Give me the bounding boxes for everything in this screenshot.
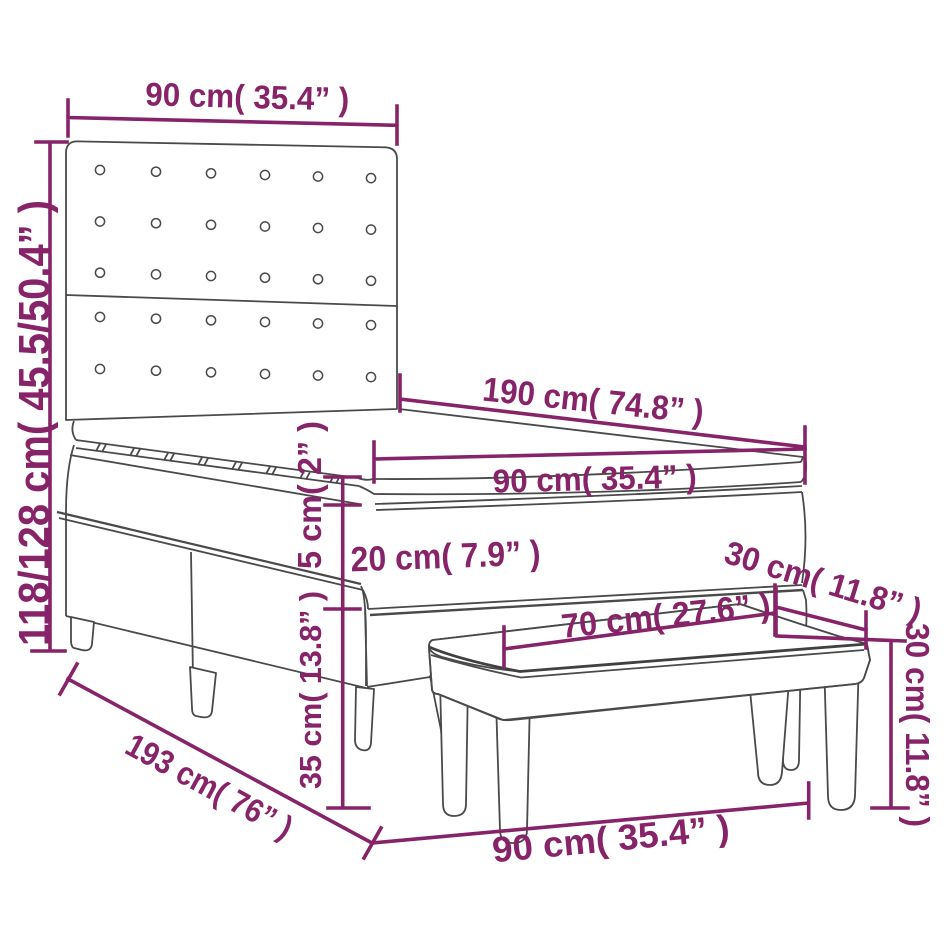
svg-text:90 cm( 35.4” ): 90 cm( 35.4” ) (145, 75, 350, 117)
svg-text:35 cm( 13.8” ): 35 cm( 13.8” ) (293, 591, 328, 789)
svg-text:118/128 cm( 45.5/50.4” ): 118/128 cm( 45.5/50.4” ) (10, 200, 59, 646)
svg-text:5 cm( 2” ): 5 cm( 2” ) (291, 421, 328, 569)
svg-text:20 cm( 7.9” ): 20 cm( 7.9” ) (350, 534, 541, 580)
svg-text:30 cm( 11.8” ): 30 cm( 11.8” ) (899, 623, 936, 827)
svg-text:90 cm( 35.4” ): 90 cm( 35.4” ) (492, 457, 697, 499)
